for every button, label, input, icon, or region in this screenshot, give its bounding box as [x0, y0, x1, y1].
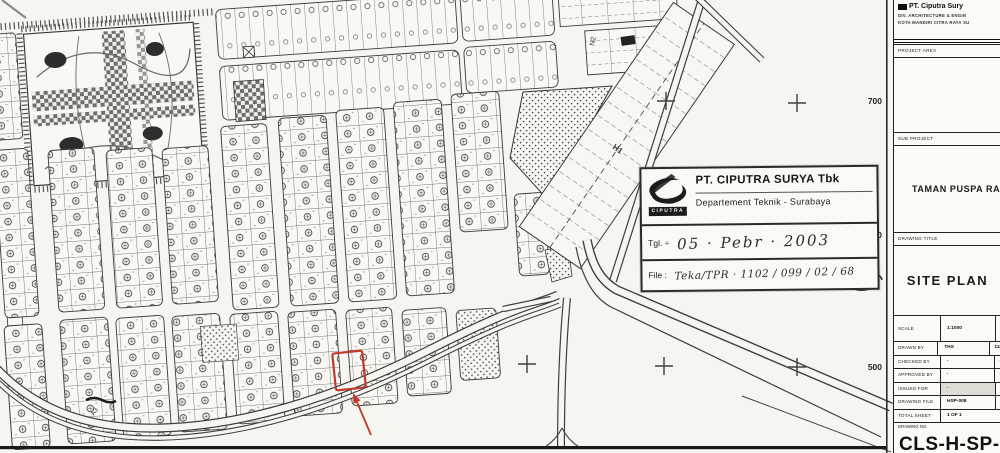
- titleblock-row-checked-by: CHECKED BY - ·: [894, 356, 1000, 370]
- stamp-file-row: File : Teka/TPR · 1102 / 099 / 02 / 68: [642, 259, 877, 289]
- ciputra-logo-icon: CIPUTRA: [641, 169, 694, 225]
- sub-project-value: TAMAN PUSPA RA: [894, 146, 1000, 233]
- svg-text:500: 500: [868, 362, 882, 372]
- stamp-date-value: 05 · Pebr · 2003: [677, 230, 830, 252]
- titleblock-row-drawing-file: DRAWING FILE HSP-008: [894, 396, 1000, 410]
- sub-project-label: SUB PROJECT: [894, 132, 1000, 146]
- drawing-title-value: SITE PLAN: [894, 246, 1000, 316]
- titleblock-header: PT. Ciputra Sury DIV. ARCHITECTURE & ENG…: [894, 0, 1000, 40]
- stamp-date-row: Tgl. ÷ 05 · Pebr · 2003: [642, 224, 877, 261]
- drawing-title-label: DRAWING TITLE: [894, 232, 1000, 246]
- titleblock-row-approved-by: APPROVED BY - ·: [894, 369, 1000, 383]
- company-name: PT. Ciputra Sury: [909, 3, 963, 10]
- stamp-file-label: File :: [648, 270, 667, 280]
- stamp-company: PT. CIPUTRA SURYA Tbk: [695, 173, 872, 187]
- scan-artifact: [2, 0, 26, 18]
- stamp-file-value: Teka/TPR · 1102 / 099 / 02 / 68: [675, 265, 855, 282]
- titleblock-row-scale: SCALE 1:1000: [894, 316, 1000, 342]
- company-address: KOTA MANDIRI CITRA RAYA SU: [898, 20, 1000, 25]
- stamp-header: CIPUTRA PT. CIPUTRA SURYA Tbk Departemen…: [641, 167, 877, 226]
- company-division: DIV. ARCHITECTURE & ENGIN: [898, 13, 1000, 18]
- company-logo-icon: [898, 4, 907, 10]
- stamp-date-label: Tgl. ÷: [648, 237, 669, 247]
- sheet-right-border: [886, 0, 888, 453]
- title-block: PT. Ciputra Sury DIV. ARCHITECTURE & ENG…: [893, 0, 1000, 453]
- titleblock-row-total-sheet: TOTAL SHEET 1 OF 1: [894, 410, 1000, 424]
- titleblock-row-drawn-by: DRAWN BY THS 12/: [894, 342, 1000, 356]
- project-area-label: PROJECT AREA: [894, 44, 1000, 58]
- dotted-reserve-lot: [200, 324, 238, 362]
- titleblock-row-issued-for: ISSUED FOR ·: [894, 383, 1000, 397]
- svg-text:700: 700: [868, 96, 882, 106]
- sheet-bottom-border: [0, 446, 887, 449]
- scanned-site-plan-sheet: H1: [0, 0, 1000, 453]
- drawing-no-value: CLS-H-SP-008: [894, 431, 1000, 453]
- drawing-no-label: DRAWING NO.: [894, 423, 1000, 431]
- department-stamp: CIPUTRA PT. CIPUTRA SURYA Tbk Departemen…: [639, 165, 879, 292]
- project-area-field: [894, 58, 1000, 133]
- stamp-department: Departement Teknik - Surabaya: [696, 191, 873, 208]
